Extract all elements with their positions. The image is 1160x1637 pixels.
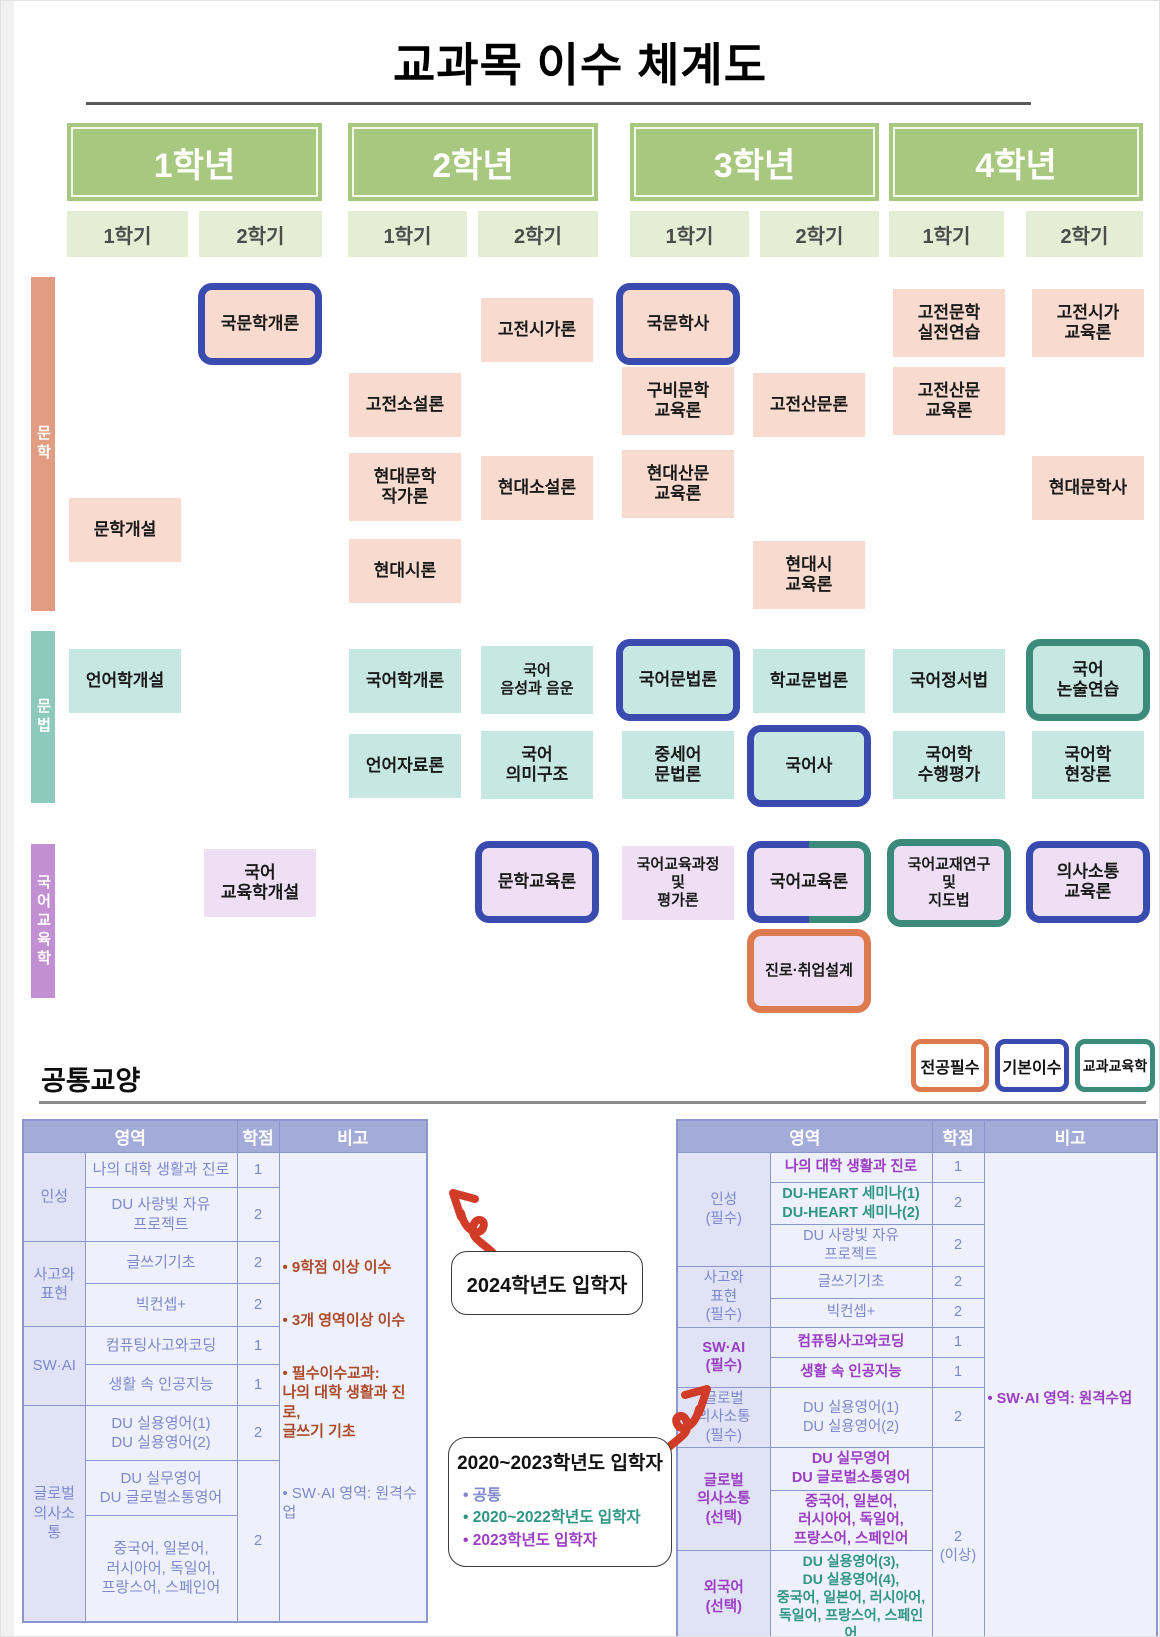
course-cell: DU-HEART 세미나(1) DU-HEART 세미나(2) bbox=[770, 1183, 932, 1225]
course-gukeo-uimigujo: 국어 의미구조 bbox=[481, 731, 593, 799]
course-uisasotong-gyoyukron: 의사소통 교육론 bbox=[1026, 841, 1150, 923]
credit-cell: 2 bbox=[237, 1242, 279, 1284]
credit-cell: 1 bbox=[932, 1327, 984, 1357]
page-title: 교과목 이수 체계도 bbox=[1, 29, 1159, 95]
course-eoneo-jaryoron: 언어자료론 bbox=[349, 734, 461, 798]
course-gubimunhak-gyoyukron: 구비문학 교육론 bbox=[622, 367, 734, 435]
course-gojeon-sanmun-gyoyukron: 고전산문 교육론 bbox=[893, 367, 1005, 435]
category-cell: 글로벌 의사소통 bbox=[23, 1406, 85, 1622]
sem-4-1: 1학기 bbox=[889, 211, 1004, 257]
note-line: • SW·AI 영역: 원격수업 bbox=[988, 1390, 1154, 1409]
note-cell: • 9학점 이상 이수 • 3개 영역이상 이수 • 필수이수교과: 나의 대학… bbox=[279, 1153, 427, 1622]
sem-2-1: 1학기 bbox=[348, 211, 467, 257]
course-gojeon-soseolron: 고전소설론 bbox=[349, 373, 461, 437]
course-cell: 중국어, 일본어, 러시아어, 독일어, 프랑스어, 스페인어 bbox=[770, 1490, 932, 1551]
credit-cell: 1 bbox=[932, 1357, 984, 1387]
credit-cell: 1 bbox=[237, 1327, 279, 1365]
sem-2-2: 2학기 bbox=[478, 211, 598, 257]
course-jungseeo-munbeopron: 중세어 문법론 bbox=[622, 731, 734, 799]
course-gukmunhak-gaeron: 국문학개론 bbox=[198, 283, 322, 365]
credit-cell: 1 bbox=[237, 1365, 279, 1406]
cohort-2020-2023-callout: 2020~2023학년도 입학자 • 공통 • 2020~2022학년도 입학자… bbox=[448, 1437, 672, 1567]
course-gukeohak-gaeron: 국어학개론 bbox=[349, 649, 461, 713]
course-cell: 빅컨셉+ bbox=[85, 1284, 237, 1327]
credit-cell: 1 bbox=[237, 1153, 279, 1188]
year-header-1: 1학년 bbox=[67, 123, 322, 201]
sem-1-1: 1학기 bbox=[67, 211, 188, 257]
category-cell: 인성 bbox=[23, 1153, 85, 1242]
cohort-2024-callout: 2024학년도 입학자 bbox=[451, 1251, 643, 1315]
course-hyundae-soseolron: 현대소설론 bbox=[481, 456, 593, 520]
section-divider bbox=[39, 1101, 1146, 1104]
course-cell: 생활 속 인공지능 bbox=[770, 1357, 932, 1387]
category-cell: 사고와 표현 bbox=[23, 1242, 85, 1327]
course-cell: DU 실용영어(3), DU 실용영어(4), 중국어, 일본어, 러시아어, … bbox=[770, 1551, 932, 1637]
course-hyundae-munhaksa: 현대문학사 bbox=[1032, 456, 1144, 520]
course-cell: DU 실용영어(1) DU 실용영어(2) bbox=[85, 1406, 237, 1461]
credit-cell: 2 (이상) bbox=[932, 1448, 984, 1637]
credit-cell: 2 bbox=[237, 1284, 279, 1327]
note-cell: • SW·AI 영역: 원격수업 bbox=[984, 1153, 1157, 1637]
common-section-title: 공통교양 bbox=[41, 1059, 140, 1098]
track-label-literature: 문학 bbox=[31, 277, 55, 611]
key-2023: • 2023학년도 입학자 bbox=[463, 1530, 671, 1552]
course-gukeo-eumseong-eumun: 국어 음성과 음운 bbox=[481, 646, 593, 714]
legend-major-required: 전공필수 bbox=[911, 1039, 989, 1092]
col-header-note: 비고 bbox=[984, 1120, 1157, 1153]
course-gukeo-gyoyukron: 국어교육론 bbox=[747, 841, 871, 923]
course-hyundae-si-gyoyukron: 현대시 교육론 bbox=[753, 541, 865, 609]
course-cell: 컴퓨팅사고와코딩 bbox=[85, 1327, 237, 1365]
category-cell: SW·AI bbox=[23, 1327, 85, 1406]
credit-cell: 2 bbox=[237, 1406, 279, 1461]
course-gukeo-jeongseobeop: 국어정서법 bbox=[893, 649, 1005, 713]
note-line: • SW·AI 영역: 원격수업 bbox=[283, 1484, 424, 1522]
year-header-3: 3학년 bbox=[630, 123, 879, 201]
note-line: • 필수이수교과: 나의 대학 생활과 진로, 글쓰기 기초 bbox=[283, 1364, 424, 1442]
key-2020-2022: • 2020~2022학년도 입학자 bbox=[463, 1507, 671, 1529]
course-gojeonmunhak-siljeon: 고전문학 실전연습 bbox=[893, 289, 1005, 357]
credit-cell: 2 bbox=[237, 1188, 279, 1242]
course-cell: 글쓰기기초 bbox=[85, 1242, 237, 1284]
red-arrow-up-left-icon bbox=[431, 1173, 521, 1263]
credit-cell: 2 bbox=[932, 1183, 984, 1225]
sem-1-2: 2학기 bbox=[199, 211, 322, 257]
course-cell: DU 실용영어(1) DU 실용영어(2) bbox=[770, 1387, 932, 1448]
course-gojeon-sanmunron: 고전산문론 bbox=[753, 373, 865, 437]
course-gukeo-nonsul-yeonseup: 국어 논술연습 bbox=[1026, 639, 1150, 721]
course-cell: 나의 대학 생활과 진로 bbox=[770, 1153, 932, 1183]
credit-cell: 2 bbox=[932, 1225, 984, 1267]
course-cell: DU 사랑빛 자유 프로젝트 bbox=[770, 1225, 932, 1267]
legend-subject-pedagogy: 교과교육학 bbox=[1075, 1039, 1155, 1092]
course-gojeon-sigaron: 고전시가론 bbox=[481, 298, 593, 362]
credit-cell: 2 bbox=[932, 1387, 984, 1448]
category-cell: 인성 (필수) bbox=[677, 1153, 770, 1267]
legend-basic-completion: 기본이수 bbox=[995, 1039, 1069, 1092]
track-label-education: 국어교육학 bbox=[31, 844, 55, 998]
course-munhak-gyoyukron: 문학교육론 bbox=[475, 841, 599, 923]
course-cell: DU 실무영어 DU 글로벌소통영어 bbox=[770, 1448, 932, 1490]
sem-4-2: 2학기 bbox=[1026, 211, 1143, 257]
course-gukmunhaksa: 국문학사 bbox=[616, 283, 740, 365]
course-cell: 중국어, 일본어, 러시아어, 독일어, 프랑스어, 스페인어 bbox=[85, 1516, 237, 1622]
course-jinro-chwieop-seolgye: 진로·취업설계 bbox=[747, 929, 871, 1013]
credit-cell: 2 bbox=[932, 1298, 984, 1327]
course-gojeon-siga-gyoyukron: 고전시가 교육론 bbox=[1032, 289, 1144, 357]
credit-cell: 2 bbox=[932, 1267, 984, 1298]
course-gukeo-gyojae-yeongu: 국어교재연구 및 지도법 bbox=[887, 839, 1011, 927]
course-gukeohak-hyeonjangron: 국어학 현장론 bbox=[1032, 731, 1144, 799]
gened-table-2024: 영역 학점 비고 인성 나의 대학 생활과 진로 1 • 9학점 이상 이수 •… bbox=[22, 1119, 428, 1623]
sem-3-1: 1학기 bbox=[630, 211, 749, 257]
course-cell: DU 사랑빛 자유 프로젝트 bbox=[85, 1188, 237, 1242]
course-cell: 나의 대학 생활과 진로 bbox=[85, 1153, 237, 1188]
course-gukeo-gyoyuk-gwajeong: 국어교육과정 및 평가론 bbox=[622, 846, 734, 920]
course-cell: DU 실무영어 DU 글로벌소통영어 bbox=[85, 1461, 237, 1516]
course-hyundae-sanmun-gyoyukron: 현대산문 교육론 bbox=[622, 450, 734, 518]
category-cell: 사고와 표현 (필수) bbox=[677, 1267, 770, 1328]
key-common: • 공통 bbox=[463, 1485, 671, 1507]
category-cell: 외국어 (선택) bbox=[677, 1551, 770, 1637]
curriculum-diagram-page: 교과목 이수 체계도 1학년 2학년 3학년 4학년 1학기 2학기 1학기 2… bbox=[0, 0, 1160, 1637]
col-header-area: 영역 bbox=[23, 1120, 237, 1153]
col-header-credit: 학점 bbox=[932, 1120, 984, 1153]
course-eoneohak-gaeseol: 언어학개설 bbox=[69, 649, 181, 713]
course-cell: 컴퓨팅사고와코딩 bbox=[770, 1327, 932, 1357]
track-label-grammar: 문법 bbox=[31, 631, 55, 803]
course-hyundae-munhak-jakgaron: 현대문학 작가론 bbox=[349, 453, 461, 521]
course-hakgyo-munbeopron: 학교문법론 bbox=[753, 649, 865, 713]
category-cell: 글로벌 의사소통 (선택) bbox=[677, 1448, 770, 1551]
cohort-color-key: • 공통 • 2020~2022학년도 입학자 • 2023학년도 입학자 bbox=[449, 1485, 671, 1552]
year-header-2: 2학년 bbox=[348, 123, 598, 201]
note-line: • 9학점 이상 이수 bbox=[283, 1258, 424, 1278]
year-header-4: 4학년 bbox=[889, 123, 1143, 201]
credit-cell: 1 bbox=[932, 1153, 984, 1183]
course-munhak-gaeseol: 문학개설 bbox=[69, 498, 181, 562]
course-gukeohak-suhaeng-pyeongga: 국어학 수행평가 bbox=[893, 731, 1005, 799]
course-gukeo-munbeopron: 국어문법론 bbox=[616, 639, 740, 721]
col-header-note: 비고 bbox=[279, 1120, 427, 1153]
col-header-credit: 학점 bbox=[237, 1120, 279, 1153]
course-cell: 생활 속 인공지능 bbox=[85, 1365, 237, 1406]
course-cell: 빅컨셉+ bbox=[770, 1298, 932, 1327]
cohort-2020-2023-title: 2020~2023학년도 입학자 bbox=[449, 1448, 671, 1475]
course-gukeo-gyoyukhak-gaeseol: 국어 교육학개설 bbox=[204, 849, 316, 917]
note-line: • 3개 영역이상 이수 bbox=[283, 1311, 424, 1331]
col-header-area: 영역 bbox=[677, 1120, 932, 1153]
credit-cell: 2 bbox=[237, 1461, 279, 1622]
title-divider bbox=[86, 102, 1031, 105]
course-hyundae-siron: 현대시론 bbox=[349, 539, 461, 603]
gened-table-2020-2023: 영역 학점 비고 인성 (필수) 나의 대학 생활과 진로 1 • SW·AI … bbox=[676, 1119, 1158, 1637]
course-cell: 글쓰기기초 bbox=[770, 1267, 932, 1298]
course-gukeosa: 국어사 bbox=[747, 725, 871, 807]
sem-3-2: 2학기 bbox=[760, 211, 879, 257]
